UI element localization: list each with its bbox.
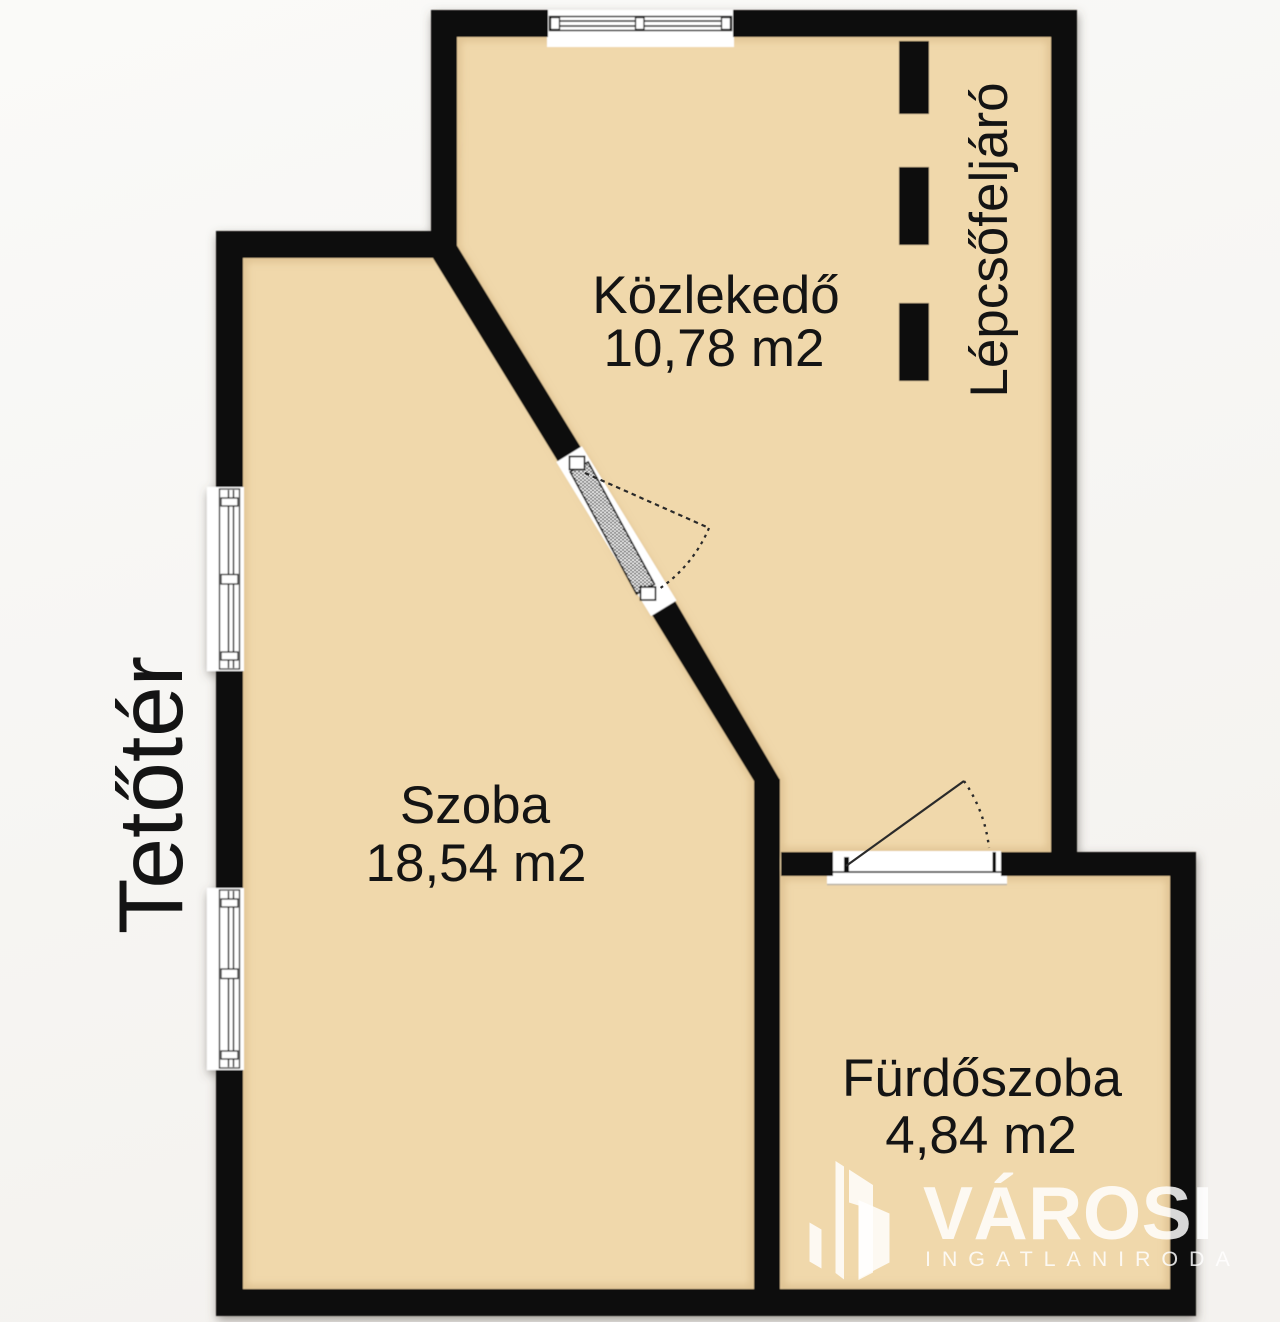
svg-text:INGATLANIRODA: INGATLANIRODA (925, 1247, 1241, 1271)
svg-text:4,84 m2: 4,84 m2 (885, 1106, 1077, 1165)
svg-text:18,54 m2: 18,54 m2 (366, 834, 587, 893)
svg-text:Lépcsőfeljáró: Lépcsőfeljáró (960, 82, 1019, 397)
svg-text:Szoba: Szoba (400, 776, 551, 835)
svg-text:Közlekedő: Közlekedő (592, 266, 840, 325)
svg-text:10,78 m2: 10,78 m2 (604, 319, 825, 378)
svg-text:VÁROSI: VÁROSI (923, 1171, 1214, 1255)
svg-text:Tetőtér: Tetőtér (101, 656, 202, 934)
svg-text:Fürdőszoba: Fürdőszoba (842, 1049, 1122, 1108)
